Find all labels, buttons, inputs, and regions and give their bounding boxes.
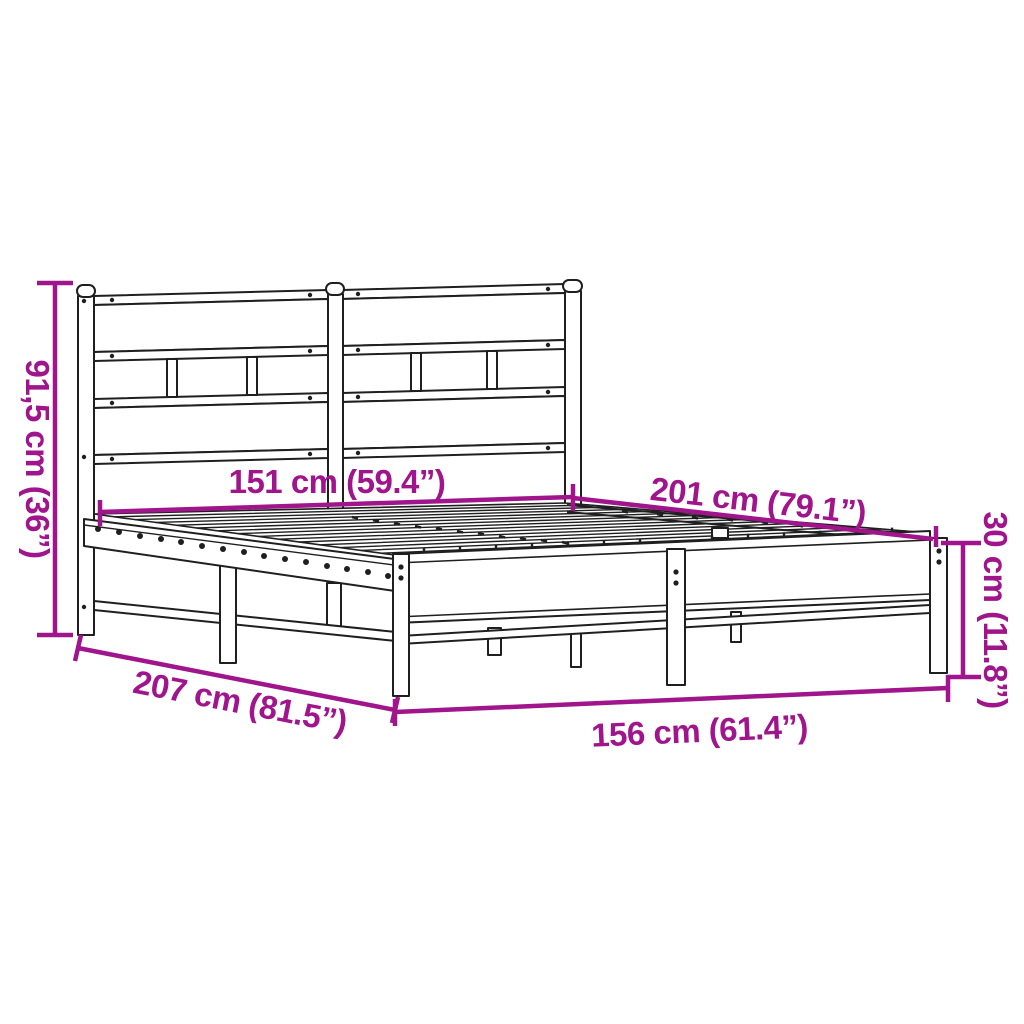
corner-post-left (393, 554, 409, 696)
headboard-left-bay (94, 290, 328, 464)
bed-frame-diagram: 91,5 cm (36”) 151 cm (59.4”) 201 cm (79.… (0, 0, 1024, 1024)
left-brace (94, 601, 396, 641)
dim-label-base-height: 30 cm (11.8”) (977, 511, 1014, 708)
diagram-canvas: 91,5 cm (36”) 151 cm (59.4”) 201 cm (79.… (0, 0, 1024, 1024)
headboard-post-right (565, 291, 581, 515)
corner-post-right (930, 538, 947, 673)
headboard-baluster (247, 357, 257, 395)
finial (326, 283, 344, 295)
headboard-post-left (78, 296, 94, 635)
headboard-baluster (487, 351, 497, 389)
headboard-baluster (167, 359, 177, 397)
dim-label-inner-width: 151 cm (59.4”) (229, 463, 446, 500)
front-mid-leg (667, 549, 685, 685)
dim-label-headboard-height: 91,5 cm (36”) (19, 360, 56, 559)
finial (563, 280, 582, 292)
finial (77, 285, 95, 297)
headboard-baluster (411, 353, 421, 391)
slat-bracket (712, 528, 728, 538)
dim-label-outer-width: 156 cm (61.4”) (590, 707, 808, 753)
dim-label-outer-length: 207 cm (81.5”) (130, 663, 350, 741)
headboard-right-bay (342, 284, 565, 458)
